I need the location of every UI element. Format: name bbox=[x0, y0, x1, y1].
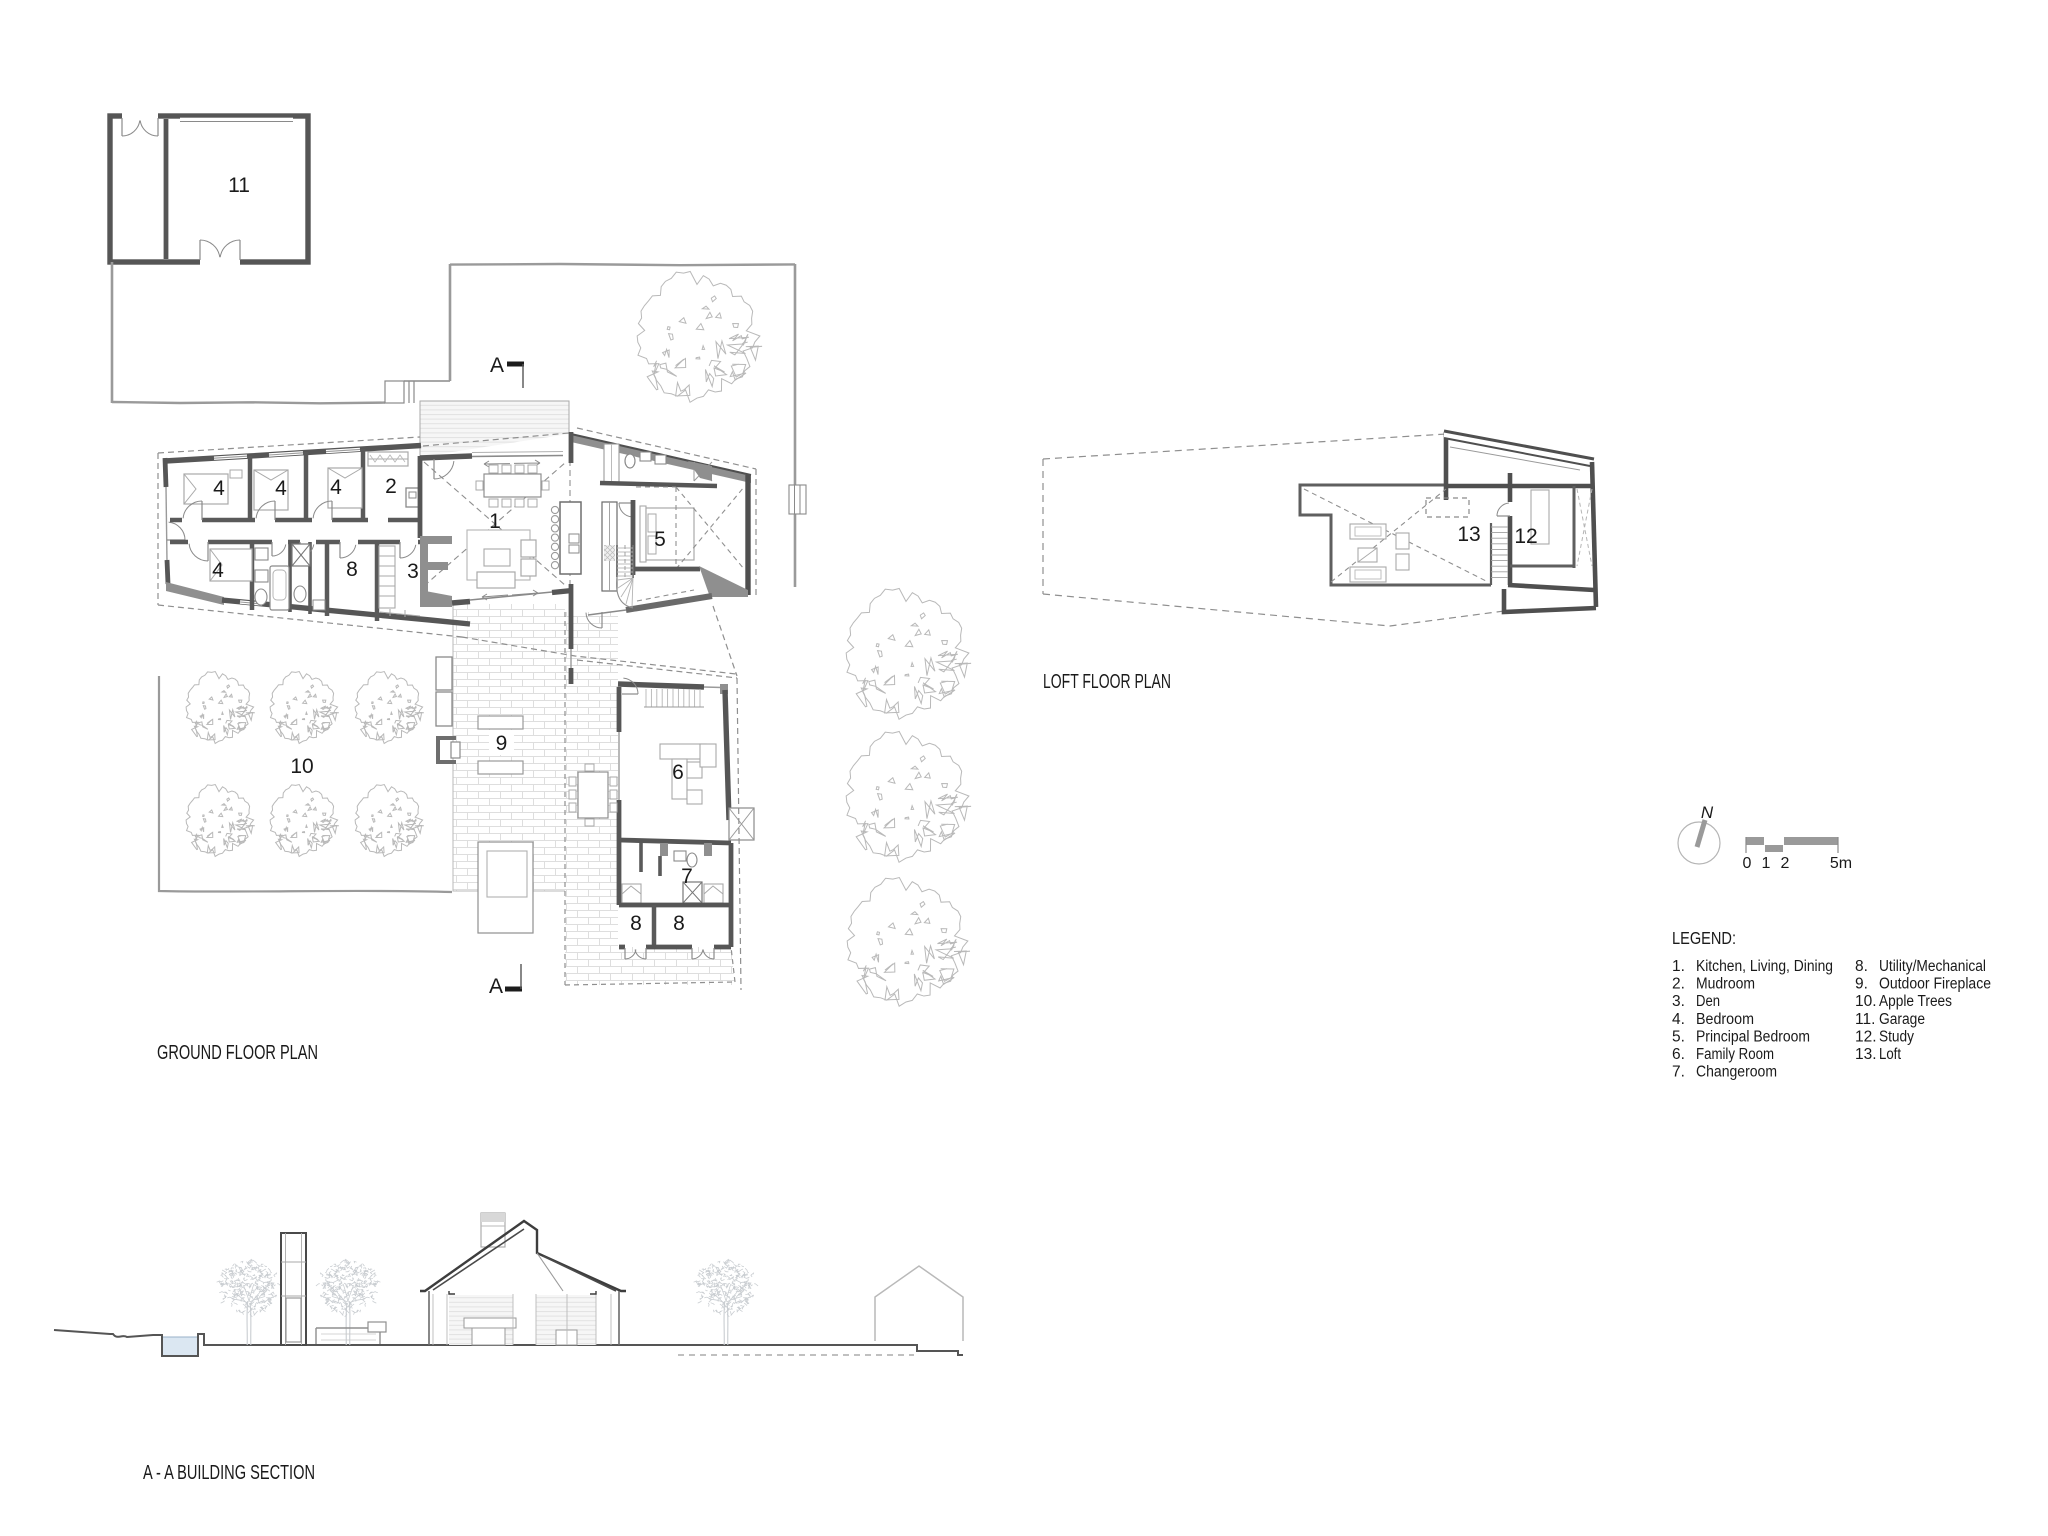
svg-text:9.: 9. bbox=[1855, 976, 1868, 993]
svg-text:12.: 12. bbox=[1855, 1028, 1877, 1045]
svg-text:A: A bbox=[489, 975, 503, 998]
svg-text:2: 2 bbox=[385, 475, 397, 498]
svg-text:11.: 11. bbox=[1855, 1011, 1875, 1028]
svg-text:Den: Den bbox=[1696, 993, 1720, 1010]
svg-text:Bedroom: Bedroom bbox=[1696, 1011, 1754, 1028]
svg-text:LEGEND:: LEGEND: bbox=[1672, 928, 1736, 948]
svg-text:3.: 3. bbox=[1672, 993, 1685, 1010]
svg-text:Garage: Garage bbox=[1879, 1011, 1925, 1028]
svg-text:5m: 5m bbox=[1830, 855, 1852, 872]
svg-text:Changeroom: Changeroom bbox=[1696, 1064, 1777, 1081]
svg-text:1: 1 bbox=[1762, 855, 1771, 872]
svg-text:10: 10 bbox=[290, 755, 313, 778]
svg-text:8: 8 bbox=[673, 912, 685, 935]
svg-text:7.: 7. bbox=[1672, 1064, 1685, 1081]
svg-text:13.: 13. bbox=[1855, 1046, 1877, 1063]
svg-text:1.: 1. bbox=[1672, 958, 1685, 975]
svg-text:LOFT FLOOR PLAN: LOFT FLOOR PLAN bbox=[1043, 670, 1171, 693]
svg-text:7: 7 bbox=[681, 865, 693, 888]
svg-text:Utility/Mechanical: Utility/Mechanical bbox=[1879, 958, 1986, 975]
svg-text:Loft: Loft bbox=[1879, 1046, 1902, 1063]
svg-text:Kitchen, Living, Dining: Kitchen, Living, Dining bbox=[1696, 958, 1833, 975]
svg-text:5: 5 bbox=[654, 528, 666, 551]
svg-text:5.: 5. bbox=[1672, 1028, 1685, 1045]
svg-text:Outdoor Fireplace: Outdoor Fireplace bbox=[1879, 976, 1991, 993]
svg-text:6: 6 bbox=[672, 761, 684, 784]
svg-text:4: 4 bbox=[212, 559, 224, 582]
svg-text:3: 3 bbox=[407, 560, 419, 583]
svg-text:10.: 10. bbox=[1855, 993, 1877, 1010]
svg-text:4: 4 bbox=[330, 476, 342, 499]
svg-text:8: 8 bbox=[346, 558, 358, 581]
svg-text:6.: 6. bbox=[1672, 1046, 1685, 1063]
svg-text:11: 11 bbox=[228, 174, 250, 197]
svg-text:A: A bbox=[490, 354, 504, 377]
svg-text:GROUND FLOOR PLAN: GROUND FLOOR PLAN bbox=[157, 1041, 318, 1064]
svg-text:1: 1 bbox=[489, 510, 501, 533]
svg-text:A - A BUILDING SECTION: A - A BUILDING SECTION bbox=[143, 1461, 315, 1484]
svg-text:Family Room: Family Room bbox=[1696, 1046, 1774, 1063]
svg-text:Apple Trees: Apple Trees bbox=[1879, 993, 1952, 1010]
svg-text:4: 4 bbox=[213, 477, 225, 500]
svg-text:N: N bbox=[1701, 803, 1714, 822]
svg-text:8.: 8. bbox=[1855, 958, 1868, 975]
svg-text:Principal Bedroom: Principal Bedroom bbox=[1696, 1028, 1810, 1045]
svg-text:9: 9 bbox=[496, 732, 508, 755]
svg-text:Mudroom: Mudroom bbox=[1696, 976, 1755, 993]
svg-text:12: 12 bbox=[1514, 525, 1537, 548]
svg-text:4.: 4. bbox=[1672, 1011, 1685, 1028]
svg-text:Study: Study bbox=[1879, 1028, 1914, 1045]
svg-text:0: 0 bbox=[1743, 855, 1752, 872]
svg-text:2.: 2. bbox=[1672, 976, 1685, 993]
svg-text:2: 2 bbox=[1781, 855, 1790, 872]
svg-text:13: 13 bbox=[1457, 523, 1480, 546]
svg-text:8: 8 bbox=[630, 912, 642, 935]
svg-text:4: 4 bbox=[275, 477, 287, 500]
